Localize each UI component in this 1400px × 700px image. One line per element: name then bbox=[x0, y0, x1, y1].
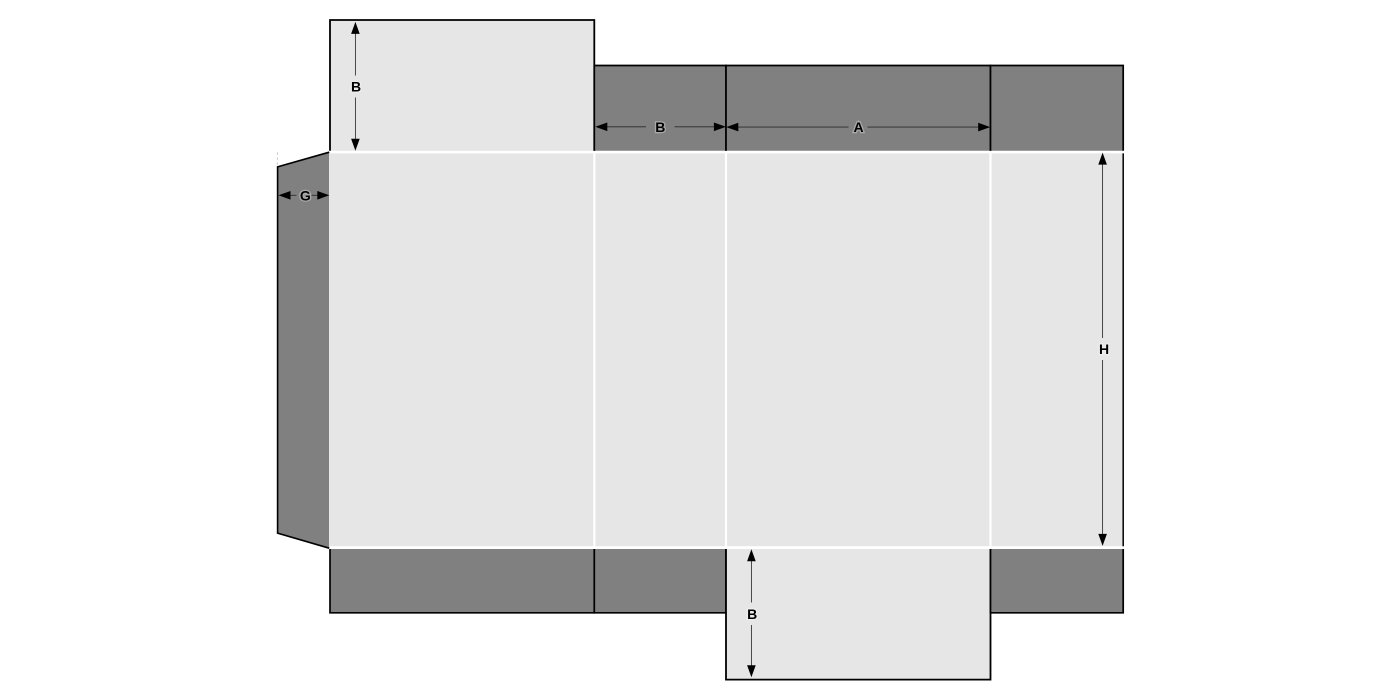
svg-text:B: B bbox=[655, 119, 665, 135]
svg-text:B: B bbox=[747, 606, 757, 622]
svg-text:B: B bbox=[351, 79, 361, 95]
svg-text:G: G bbox=[300, 187, 311, 203]
svg-text:A: A bbox=[854, 119, 864, 135]
svg-text:H: H bbox=[1099, 341, 1109, 357]
